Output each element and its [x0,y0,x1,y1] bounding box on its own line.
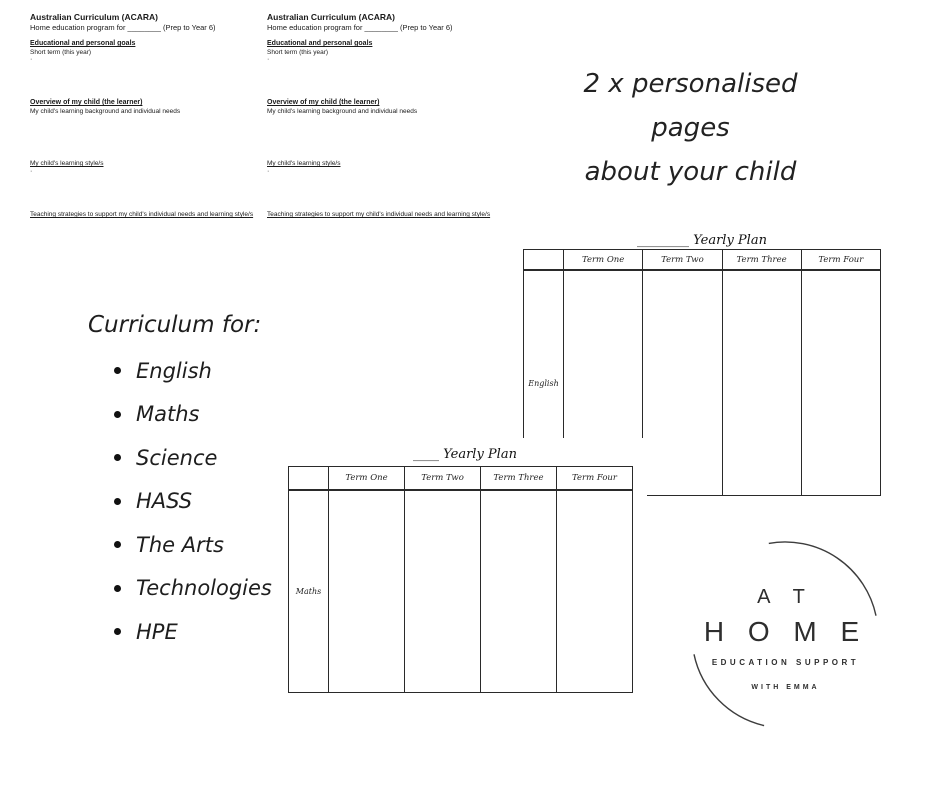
acara-page-2: Australian Curriculum (ACARA) Home educa… [267,12,495,227]
plan-cell [480,491,556,692]
list-item-label: Technologies [136,576,272,600]
curriculum-list: Curriculum for: English Maths Science HA… [88,310,272,654]
term-header: Term Four [801,250,880,271]
list-item: HASS [114,480,272,524]
yearly-plan-title: ____ Yearly Plan [283,446,647,463]
list-item-label: Maths [136,402,199,426]
note-line-2: about your child [558,150,823,194]
list-item: English [114,349,272,393]
term-header: Term Three [480,467,556,491]
section-heading-teaching-strategies: Teaching strategies to support my child'… [267,211,490,218]
term-header: Term Two [642,250,721,271]
term-header: Term One [563,250,642,271]
logo-text-with-emma: WITH EMMA [658,684,913,691]
plan-grid: Term One Term Two Term Three Term Four M… [288,466,633,693]
corner-cell [524,250,563,271]
yearly-plan-table-bottom: ____ Yearly Plan Term One Term Two Term … [283,438,647,700]
section-body-background: My child's learning background and indiv… [30,108,180,115]
plan-cell [556,491,632,692]
list-item: Maths [114,393,272,437]
bullet-dot: · [267,168,269,175]
note-line-1: 2 x personalised pages [558,62,823,150]
term-header: Term One [328,467,404,491]
term-header: Term Two [404,467,480,491]
list-item: Technologies [114,567,272,611]
logo-text-education-support: EDUCATION SUPPORT [658,658,913,667]
page-subtitle: Home education program for ________ (Pre… [30,23,216,32]
promo-canvas: Australian Curriculum (ACARA) Home educa… [0,0,940,788]
section-heading-overview: Overview of my child (the learner) [30,99,142,106]
bullet-dot: · [30,168,32,175]
list-item-label: HPE [136,620,178,644]
row-label-maths: Maths [289,491,328,692]
bullet-dot: · [267,56,269,63]
logo-text-at: A T [658,586,913,609]
plan-cell [642,271,721,495]
plan-cell [404,491,480,692]
section-body-short-term: Short term (this year) [30,49,91,56]
bullet-icon [114,628,121,635]
section-heading-learning-style: My child's learning style/s [30,160,104,167]
bullet-icon [114,541,121,548]
bullet-icon [114,498,121,505]
bullet-icon [114,585,121,592]
list-item: Science [114,436,272,480]
section-heading-overview: Overview of my child (the learner) [267,99,379,106]
page-subtitle: Home education program for ________ (Pre… [267,23,453,32]
section-body-background: My child's learning background and indiv… [267,108,417,115]
acara-page-1: Australian Curriculum (ACARA) Home educa… [30,12,258,227]
list-item-label: The Arts [136,533,224,557]
curriculum-items: English Maths Science HASS The Arts Tech… [114,349,272,654]
plan-cell [328,491,404,692]
list-item-label: English [136,359,212,383]
section-heading-learning-style: My child's learning style/s [267,160,341,167]
term-header: Term Three [722,250,801,271]
bullet-icon [114,454,121,461]
bullet-icon [114,411,121,418]
curriculum-heading: Curriculum for: [88,310,272,341]
list-item: HPE [114,610,272,654]
handwritten-note: 2 x personalised pages about your child [558,62,823,194]
section-heading-goals: Educational and personal goals [30,40,135,47]
logo-text-home: H O M E [658,616,913,648]
section-body-short-term: Short term (this year) [267,49,328,56]
plan-cell [801,271,880,495]
page-title: Australian Curriculum (ACARA) [267,12,395,22]
list-item-label: HASS [136,489,192,513]
page-title: Australian Curriculum (ACARA) [30,12,158,22]
logo: A T H O M E EDUCATION SUPPORT WITH EMMA [658,508,913,763]
term-header: Term Four [556,467,632,491]
corner-cell [289,467,328,491]
section-heading-goals: Educational and personal goals [267,40,372,47]
bullet-dot: · [30,56,32,63]
yearly-plan-title: ________ Yearly Plan [523,232,881,249]
list-item: The Arts [114,523,272,567]
section-heading-teaching-strategies: Teaching strategies to support my child'… [30,211,253,218]
list-item-label: Science [136,446,217,470]
plan-cell [722,271,801,495]
bullet-icon [114,367,121,374]
